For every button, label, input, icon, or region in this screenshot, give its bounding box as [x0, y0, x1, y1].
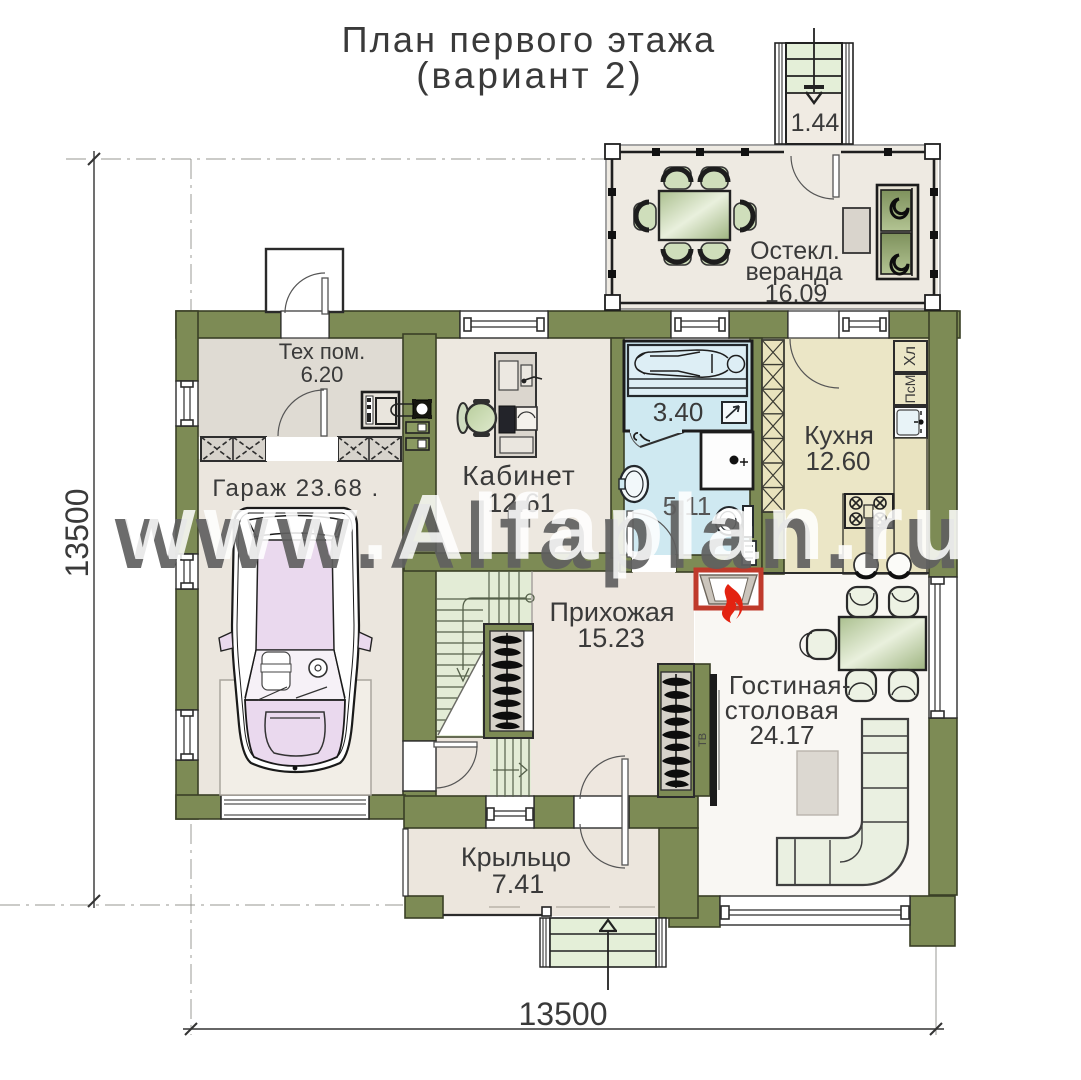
svg-text:Крыльцо: Крыльцо — [461, 842, 571, 872]
svg-text:ТВ: ТВ — [697, 733, 709, 747]
svg-text:1.44: 1.44 — [791, 109, 840, 137]
svg-text:15.23: 15.23 — [577, 623, 645, 653]
svg-text:ПсМ: ПсМ — [902, 375, 918, 404]
svg-text:16.09: 16.09 — [765, 280, 828, 308]
svg-text:6.20: 6.20 — [301, 362, 344, 387]
svg-text:12.60: 12.60 — [805, 446, 870, 476]
svg-text:13500: 13500 — [519, 996, 608, 1032]
svg-text:24.17: 24.17 — [749, 720, 814, 750]
svg-text:7.41: 7.41 — [492, 869, 545, 899]
svg-text:План первого этажа: План первого этажа — [342, 19, 717, 60]
svg-text:Тех пом.: Тех пом. — [279, 339, 365, 364]
svg-text:Хл: Хл — [902, 346, 919, 366]
svg-text:3.40: 3.40 — [653, 397, 704, 427]
svg-text:www.Alfaplan.ru: www.Alfaplan.ru — [122, 475, 977, 579]
svg-text:(вариант 2): (вариант 2) — [416, 55, 644, 96]
svg-text:13500: 13500 — [59, 489, 95, 578]
